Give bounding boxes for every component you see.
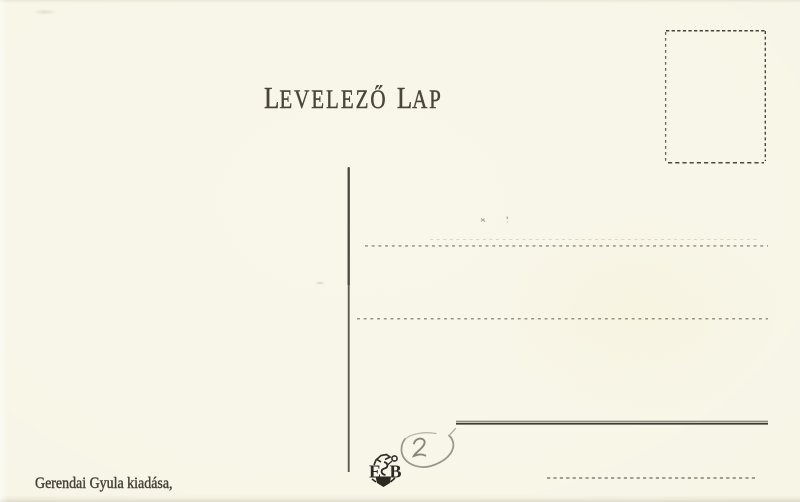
svg-text:B: B [390,462,402,482]
